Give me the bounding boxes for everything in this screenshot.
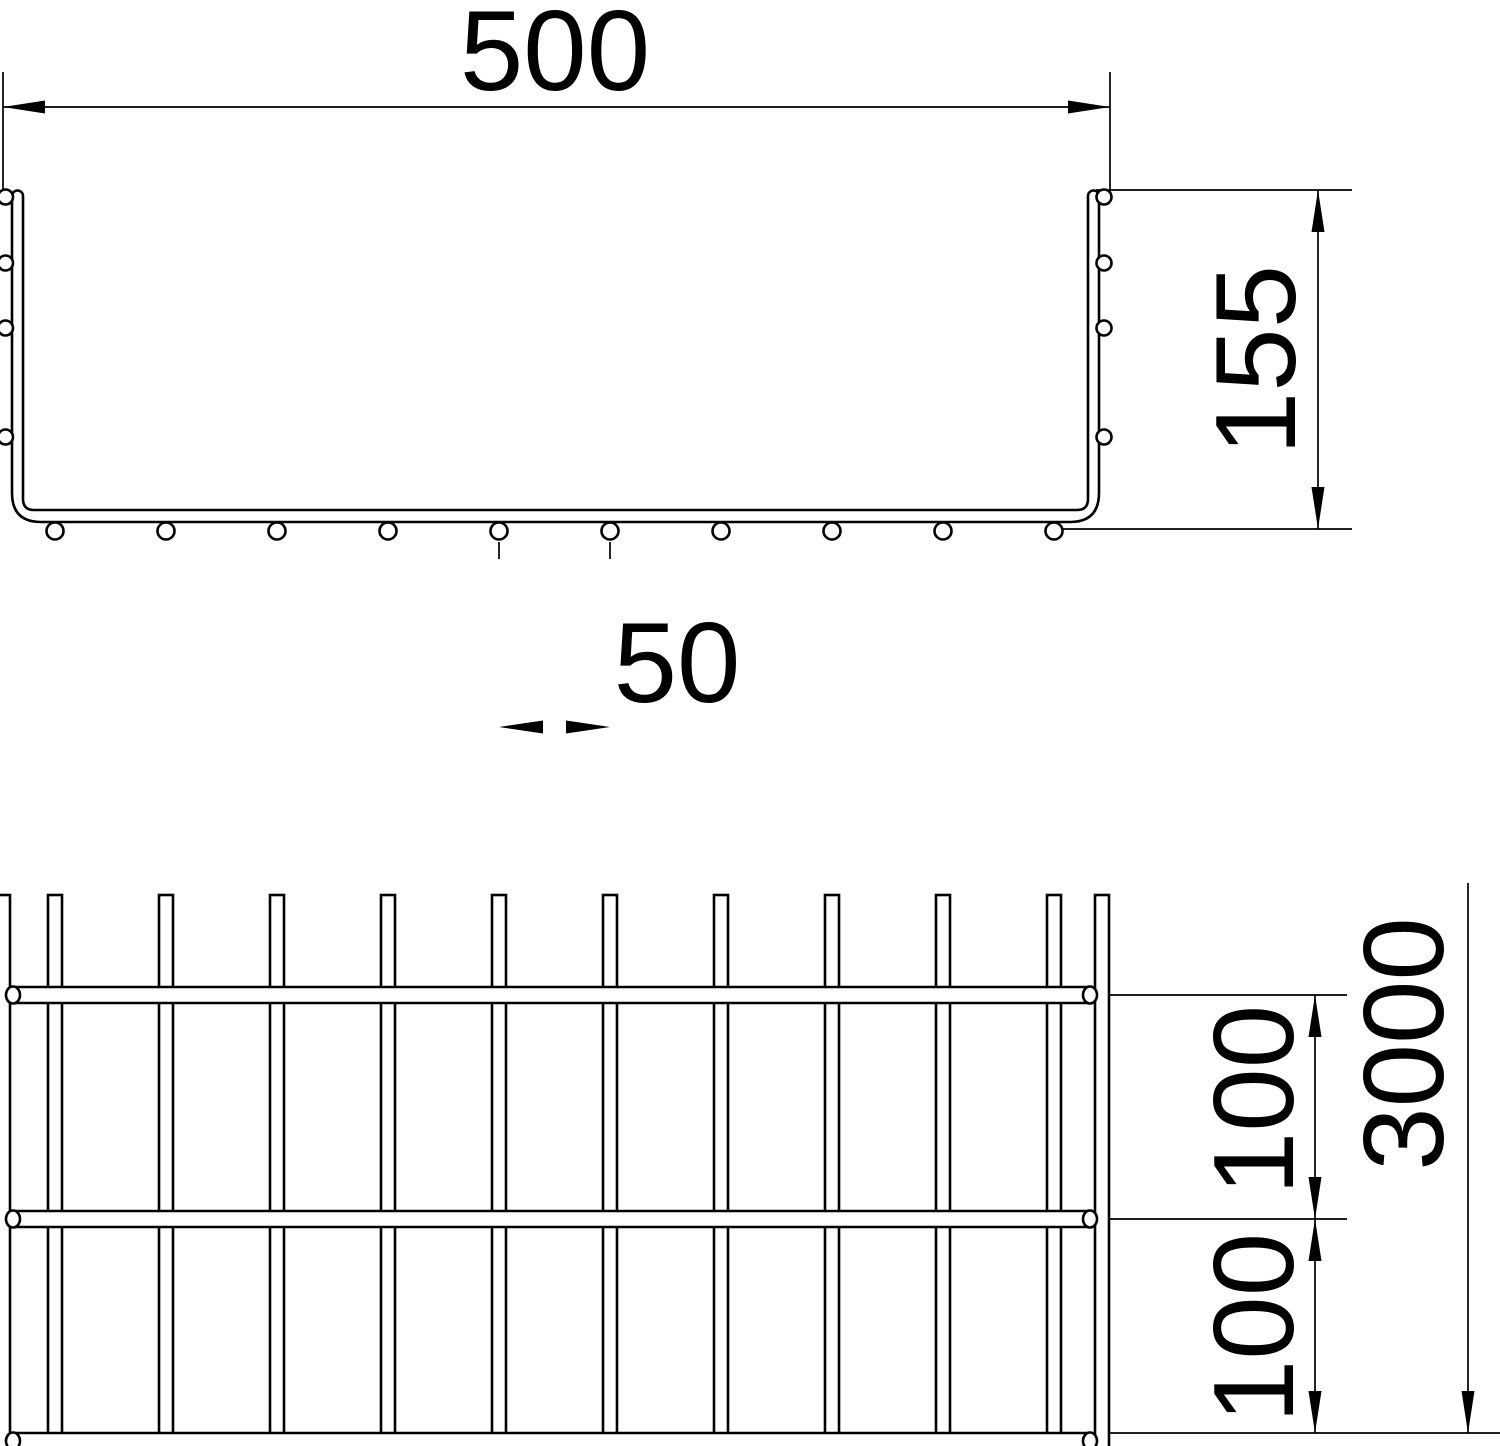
rung-body xyxy=(13,987,1090,1003)
bottom-wire xyxy=(380,523,397,540)
cable-tray-dimension-drawing: 500 155 xyxy=(0,0,1500,1446)
wall-wire xyxy=(0,256,13,271)
longitudinal-wire xyxy=(1095,895,1109,1446)
wall-wire xyxy=(1097,256,1112,271)
rung-end-cap xyxy=(1083,1433,1097,1446)
dim-width-label: 500 xyxy=(460,0,650,115)
longitudinal-wire xyxy=(936,895,950,1446)
rung-end-cap xyxy=(6,1433,20,1446)
longitudinal-wire xyxy=(0,895,10,1446)
longitudinal-wire xyxy=(603,895,617,1446)
longitudinal-wire xyxy=(825,895,839,1446)
rung-end-cap xyxy=(1083,1211,1097,1228)
dim-rung-spacing-2-label: 100 xyxy=(1191,1233,1318,1423)
drawing-background xyxy=(0,0,1500,1446)
bottom-wire xyxy=(824,523,841,540)
technical-drawing-page: 500 155 xyxy=(0,0,1500,1446)
dim-wire-spacing-label: 50 xyxy=(614,600,741,727)
longitudinal-wire xyxy=(270,895,284,1446)
wall-wire xyxy=(1097,321,1112,336)
bottom-wire xyxy=(713,523,730,540)
bottom-wire xyxy=(1046,523,1063,540)
bottom-wire xyxy=(935,523,952,540)
cross-rung-3 xyxy=(6,1433,1097,1446)
longitudinal-wire xyxy=(159,895,173,1446)
longitudinal-wire xyxy=(714,895,728,1446)
wall-wire xyxy=(1097,190,1112,205)
rung-body xyxy=(13,1433,1090,1446)
bottom-wire xyxy=(269,523,286,540)
wall-wire xyxy=(1097,430,1112,445)
dim-height-label: 155 xyxy=(1193,265,1320,455)
wall-wire xyxy=(0,430,13,445)
longitudinal-wire xyxy=(1047,895,1061,1446)
dim-rung-spacing-1-label: 100 xyxy=(1191,1005,1318,1195)
cross-rung-2 xyxy=(6,1211,1097,1228)
longitudinal-wire xyxy=(48,895,62,1446)
rung-body xyxy=(13,1211,1090,1227)
rung-end-cap xyxy=(6,1211,20,1228)
longitudinal-wire xyxy=(381,895,395,1446)
bottom-wire xyxy=(602,523,619,540)
bottom-wire xyxy=(491,523,508,540)
bottom-wire xyxy=(47,523,64,540)
dim-length-label: 3000 xyxy=(1341,917,1468,1171)
rung-end-cap xyxy=(1083,987,1097,1004)
wall-wire xyxy=(0,190,13,205)
cross-rung-1 xyxy=(6,987,1097,1004)
longitudinal-wire xyxy=(492,895,506,1446)
rung-end-cap xyxy=(6,987,20,1004)
bottom-wire xyxy=(158,523,175,540)
wall-wire xyxy=(0,321,13,336)
